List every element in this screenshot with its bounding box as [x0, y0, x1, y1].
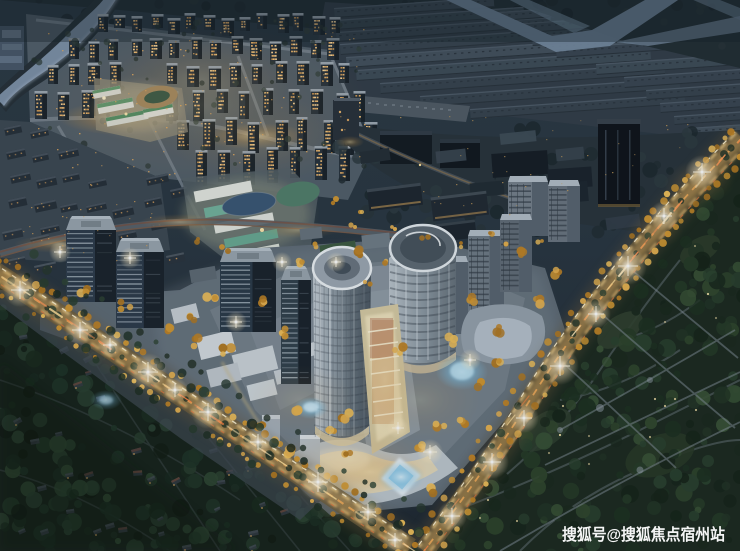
- svg-text:搜狐号@搜狐焦点宿州站: 搜狐号@搜狐焦点宿州站: [562, 525, 725, 544]
